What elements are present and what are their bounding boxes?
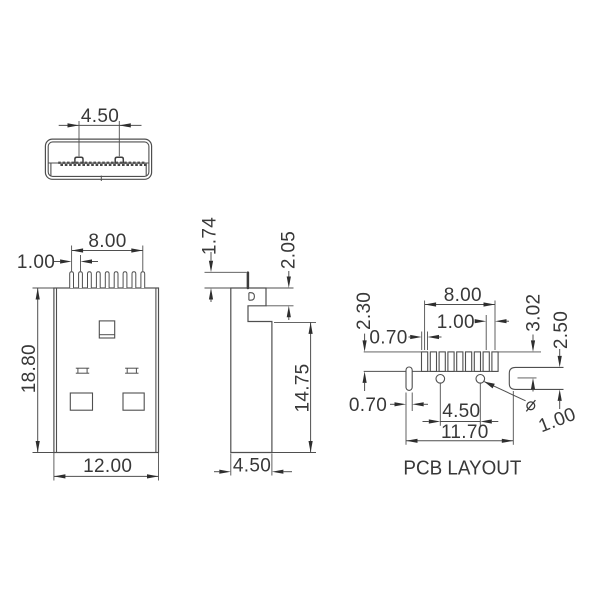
svg-text:4.50: 4.50	[442, 401, 480, 422]
svg-text:4.50: 4.50	[233, 455, 271, 476]
svg-text:0.70: 0.70	[369, 328, 407, 349]
svg-text:1.00: 1.00	[437, 312, 475, 333]
svg-text:2.05: 2.05	[279, 231, 300, 269]
svg-text:4.50: 4.50	[81, 106, 119, 127]
svg-text:12.00: 12.00	[83, 456, 132, 477]
svg-text:8.00: 8.00	[88, 231, 126, 252]
svg-text:2.50: 2.50	[551, 311, 572, 349]
svg-text:1.00: 1.00	[536, 404, 579, 437]
svg-text:1.00: 1.00	[17, 252, 55, 273]
svg-text:1.74: 1.74	[200, 217, 221, 255]
svg-text:0.70: 0.70	[349, 395, 387, 416]
svg-text:8.00: 8.00	[444, 285, 482, 306]
svg-text:11.70: 11.70	[441, 422, 489, 443]
svg-text:PCB LAYOUT: PCB LAYOUT	[403, 456, 521, 479]
svg-text:3.02: 3.02	[524, 294, 545, 332]
svg-text:18.80: 18.80	[19, 344, 40, 393]
svg-text:2.30: 2.30	[354, 292, 375, 330]
svg-text:14.75: 14.75	[293, 363, 314, 412]
